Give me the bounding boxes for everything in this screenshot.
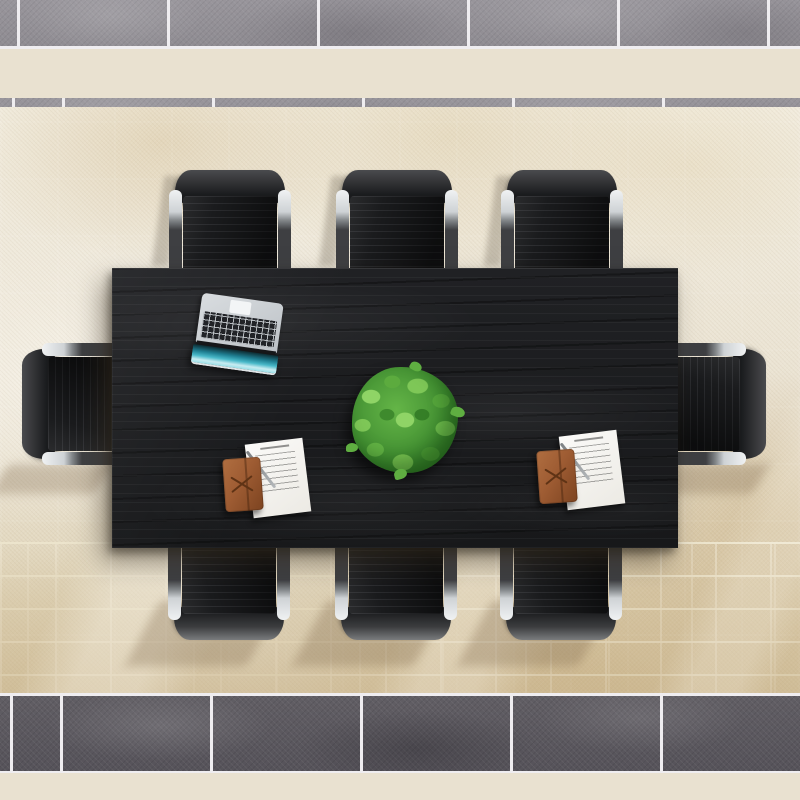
floor-tiles-bottom — [0, 693, 800, 800]
folder-tie — [230, 477, 253, 492]
chair-armrest-right — [444, 544, 457, 620]
chair-backrest — [182, 541, 276, 614]
office-chair-bottom-2 — [336, 544, 456, 640]
office-chair-left — [22, 344, 124, 464]
chair-backrest — [350, 196, 444, 275]
chair-armrest-left — [168, 544, 181, 620]
chair-armrest-left — [335, 544, 348, 620]
chair-armrest-right — [609, 544, 622, 620]
chair-armrest-right — [445, 190, 458, 272]
tile-row — [0, 0, 800, 49]
document-set-right — [536, 430, 636, 520]
chair-shadow — [0, 464, 112, 494]
chair-armrest-left — [336, 190, 349, 272]
chair-armrest-right — [610, 190, 623, 272]
chair-armrest-right — [278, 190, 291, 272]
chair-armrest-left — [169, 190, 182, 272]
office-chair-top-2 — [337, 170, 457, 272]
chair-backrest — [349, 541, 443, 614]
chair-backrest — [514, 541, 608, 614]
leather-folder — [536, 449, 578, 505]
chair-backrest — [183, 196, 277, 275]
document-set-left — [222, 438, 322, 528]
chair-armrest-left — [500, 544, 513, 620]
conference-table — [112, 268, 678, 548]
plant-leaf — [409, 360, 424, 374]
floor-tiles-top — [0, 0, 800, 107]
laptop — [192, 293, 284, 378]
plant-leaf — [393, 467, 408, 480]
leather-folder — [222, 457, 264, 513]
office-chair-right — [664, 344, 766, 464]
office-chair-top-3 — [502, 170, 622, 272]
potted-plant — [352, 367, 458, 473]
office-chair-bottom-1 — [169, 544, 289, 640]
folder-tie — [544, 469, 567, 484]
product-photo-scene — [0, 0, 800, 800]
chair-backrest — [515, 196, 609, 275]
office-chair-top-1 — [170, 170, 290, 272]
tile-row — [0, 696, 800, 773]
plant-leaf — [450, 405, 467, 419]
chair-armrest-left — [501, 190, 514, 272]
chair-armrest-right — [277, 544, 290, 620]
laptop-trackpad — [229, 300, 252, 316]
plant-leaf — [346, 443, 358, 452]
office-chair-bottom-3 — [501, 544, 621, 640]
